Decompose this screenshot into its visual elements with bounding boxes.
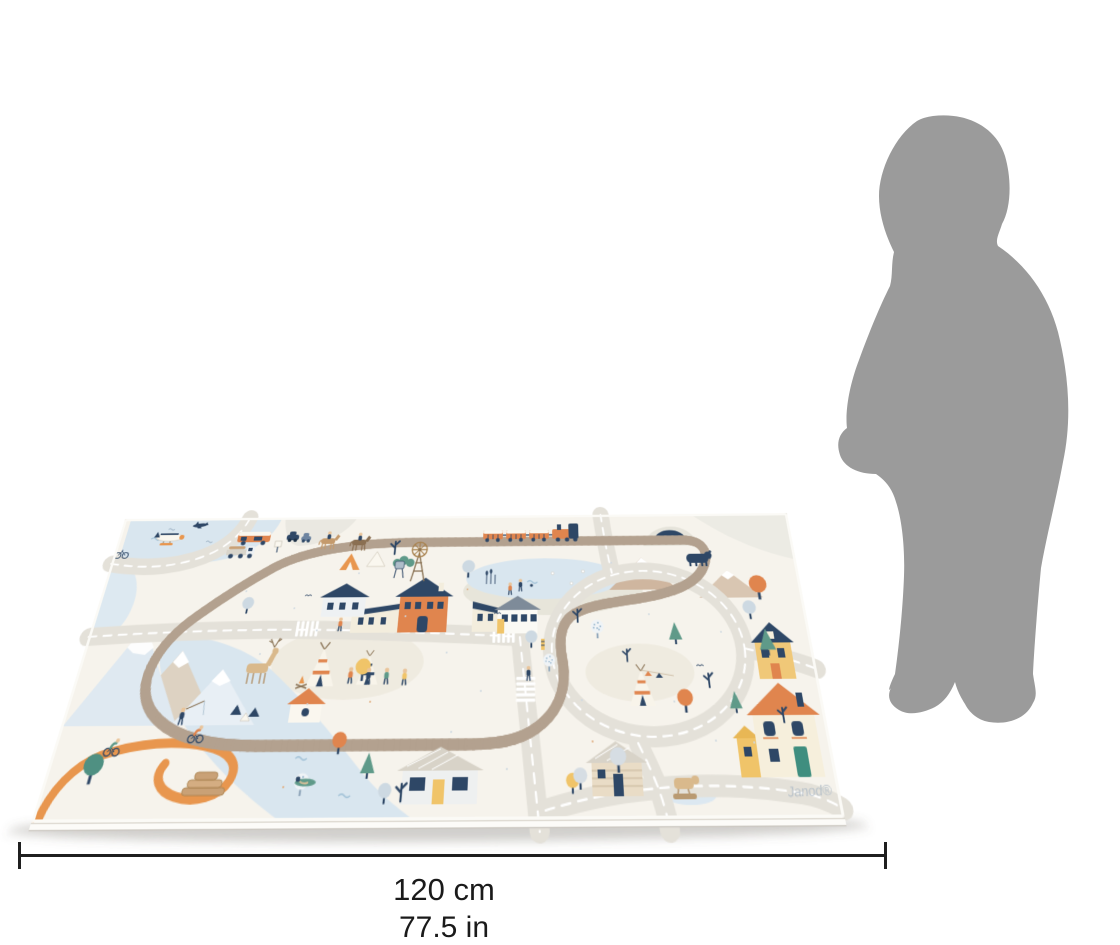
- brand-logo: Janod®: [785, 782, 834, 800]
- signal-pole-icon: [541, 639, 545, 650]
- truck-icon: [225, 546, 256, 558]
- product-image-canvas: Janod® 120 cm 77.5 in: [0, 0, 1120, 934]
- dimension-label-cm: 120 cm: [0, 872, 888, 908]
- play-mat: Janod®: [27, 513, 847, 835]
- mat-illustration: Janod®: [27, 513, 847, 835]
- dimension-cap-right: [884, 842, 887, 869]
- dimension-line: [19, 854, 886, 857]
- child-silhouette: [833, 112, 1073, 734]
- dimension-label-in: 77.5 in: [0, 911, 888, 945]
